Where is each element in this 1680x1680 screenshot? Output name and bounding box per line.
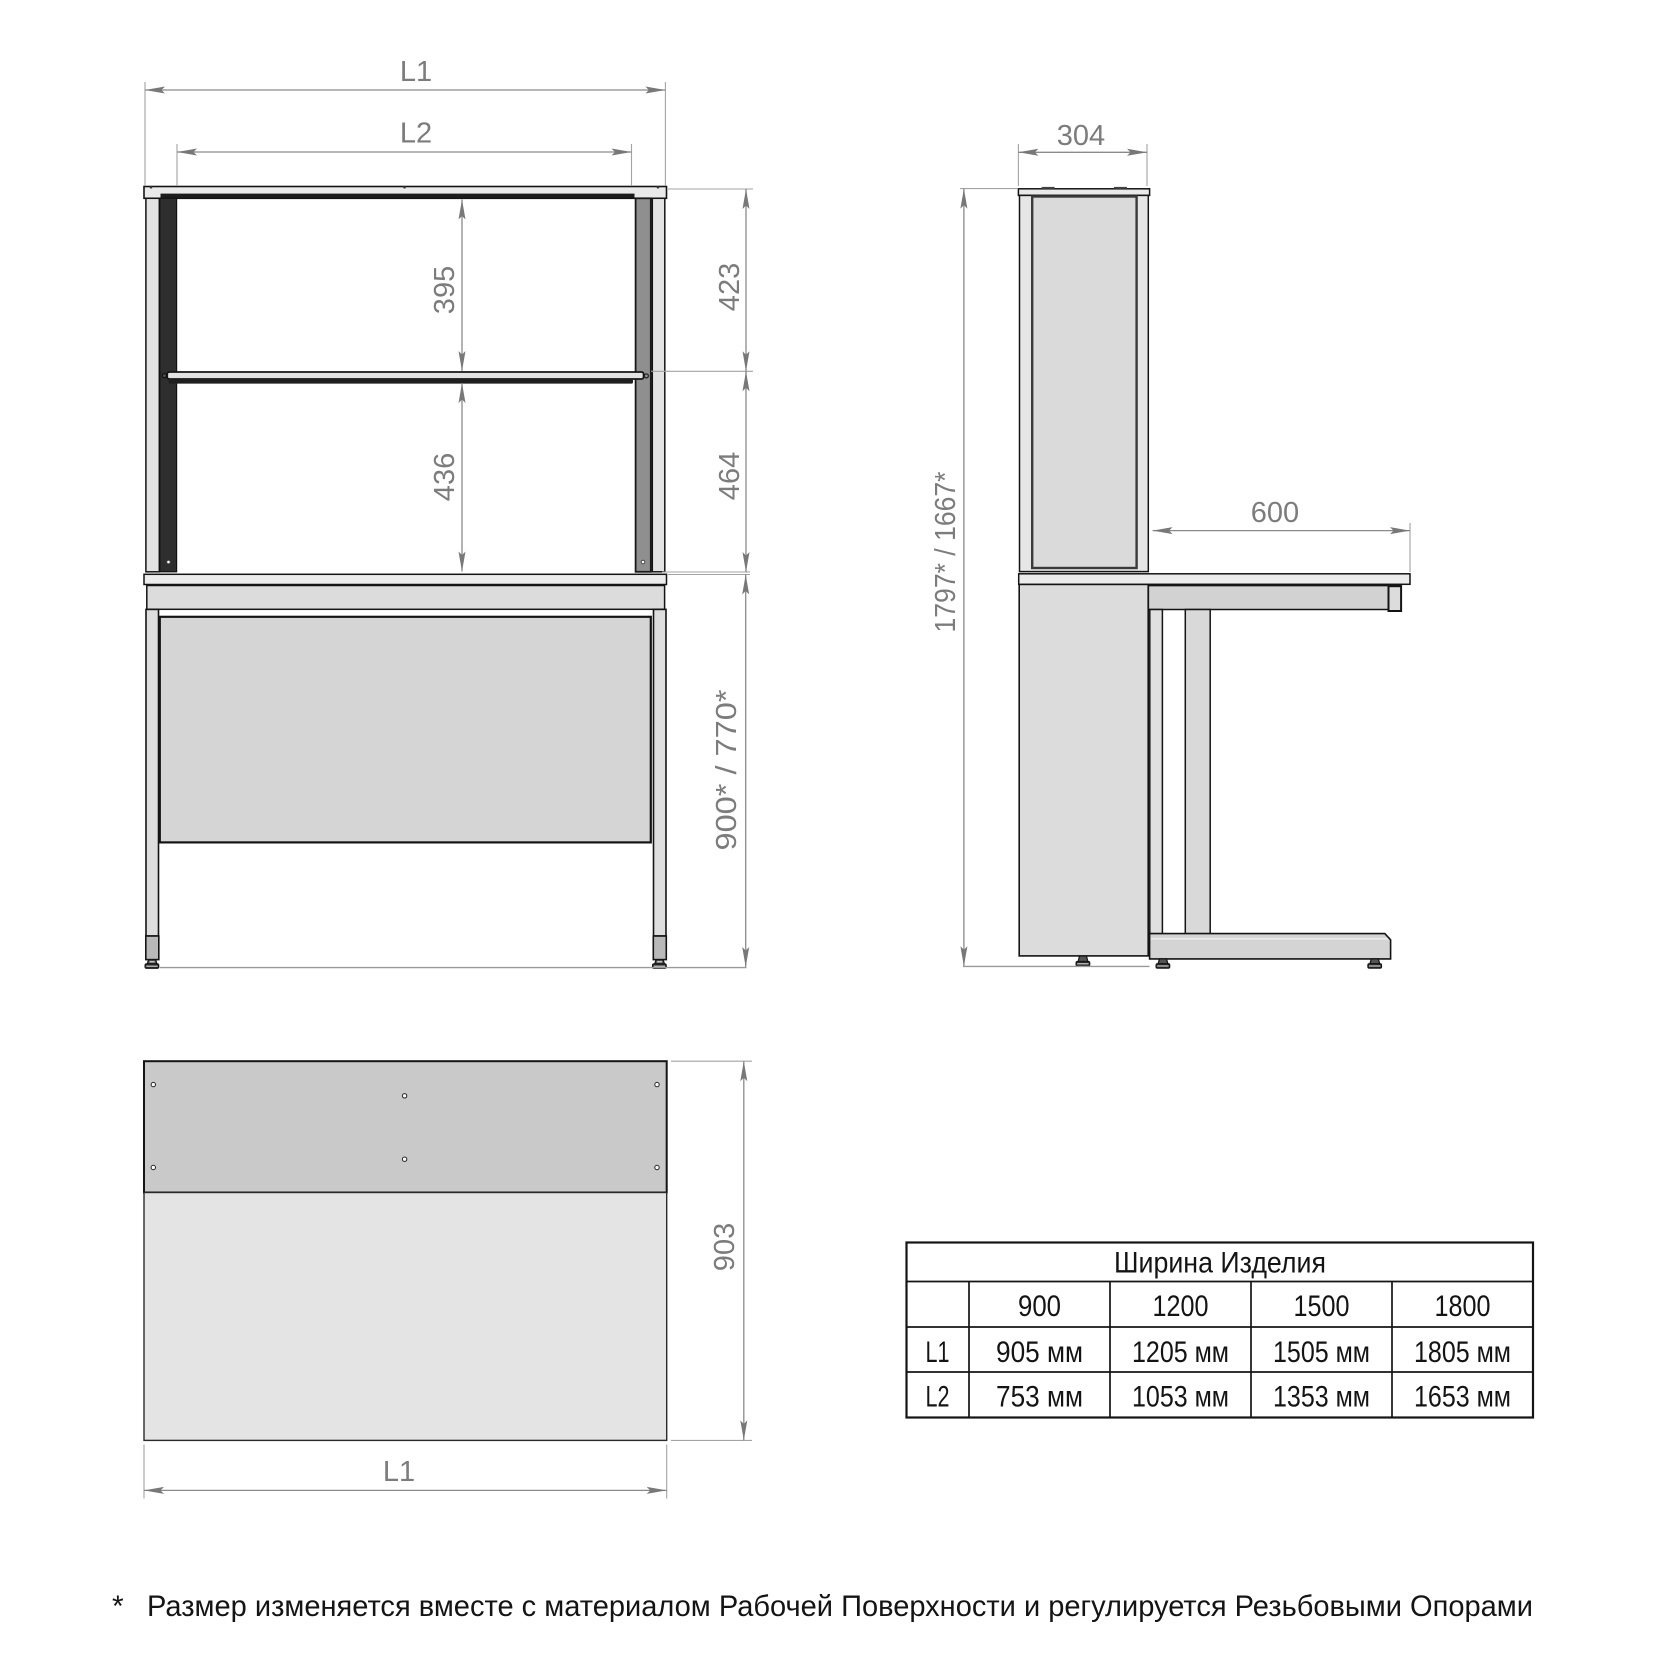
svg-text:423: 423 xyxy=(714,263,746,311)
svg-text:L1: L1 xyxy=(926,1336,950,1369)
svg-text:900: 900 xyxy=(1018,1290,1061,1323)
svg-text:1800: 1800 xyxy=(1435,1290,1491,1323)
svg-text:L2: L2 xyxy=(926,1381,950,1414)
svg-text:1805 мм: 1805 мм xyxy=(1414,1336,1511,1369)
svg-text:L2: L2 xyxy=(400,118,432,150)
svg-text:903: 903 xyxy=(709,1223,741,1271)
svg-text:1797* / 1667*: 1797* / 1667* xyxy=(930,472,962,633)
svg-text:1500: 1500 xyxy=(1294,1290,1350,1323)
svg-text:600: 600 xyxy=(1251,497,1299,529)
svg-text:Ширина Изделия: Ширина Изделия xyxy=(1114,1247,1326,1280)
svg-text:900* / 770*: 900* / 770* xyxy=(711,690,743,851)
svg-text:395: 395 xyxy=(429,266,461,314)
svg-text:Размер изменяется вместе с мат: Размер изменяется вместе с материалом Ра… xyxy=(147,1590,1533,1623)
svg-text:L1: L1 xyxy=(383,1456,415,1488)
svg-text:753 мм: 753 мм xyxy=(996,1381,1083,1414)
svg-text:*: * xyxy=(112,1590,124,1623)
svg-text:905 мм: 905 мм xyxy=(996,1336,1083,1369)
svg-text:1505 мм: 1505 мм xyxy=(1273,1336,1370,1369)
svg-text:1353 мм: 1353 мм xyxy=(1273,1381,1370,1414)
svg-text:304: 304 xyxy=(1057,120,1105,152)
svg-text:436: 436 xyxy=(429,453,461,501)
svg-text:464: 464 xyxy=(714,452,746,500)
svg-text:1205 мм: 1205 мм xyxy=(1132,1336,1229,1369)
svg-text:L1: L1 xyxy=(400,56,432,88)
svg-text:1053 мм: 1053 мм xyxy=(1132,1381,1229,1414)
svg-text:1200: 1200 xyxy=(1153,1290,1209,1323)
svg-text:1653 мм: 1653 мм xyxy=(1414,1381,1511,1414)
